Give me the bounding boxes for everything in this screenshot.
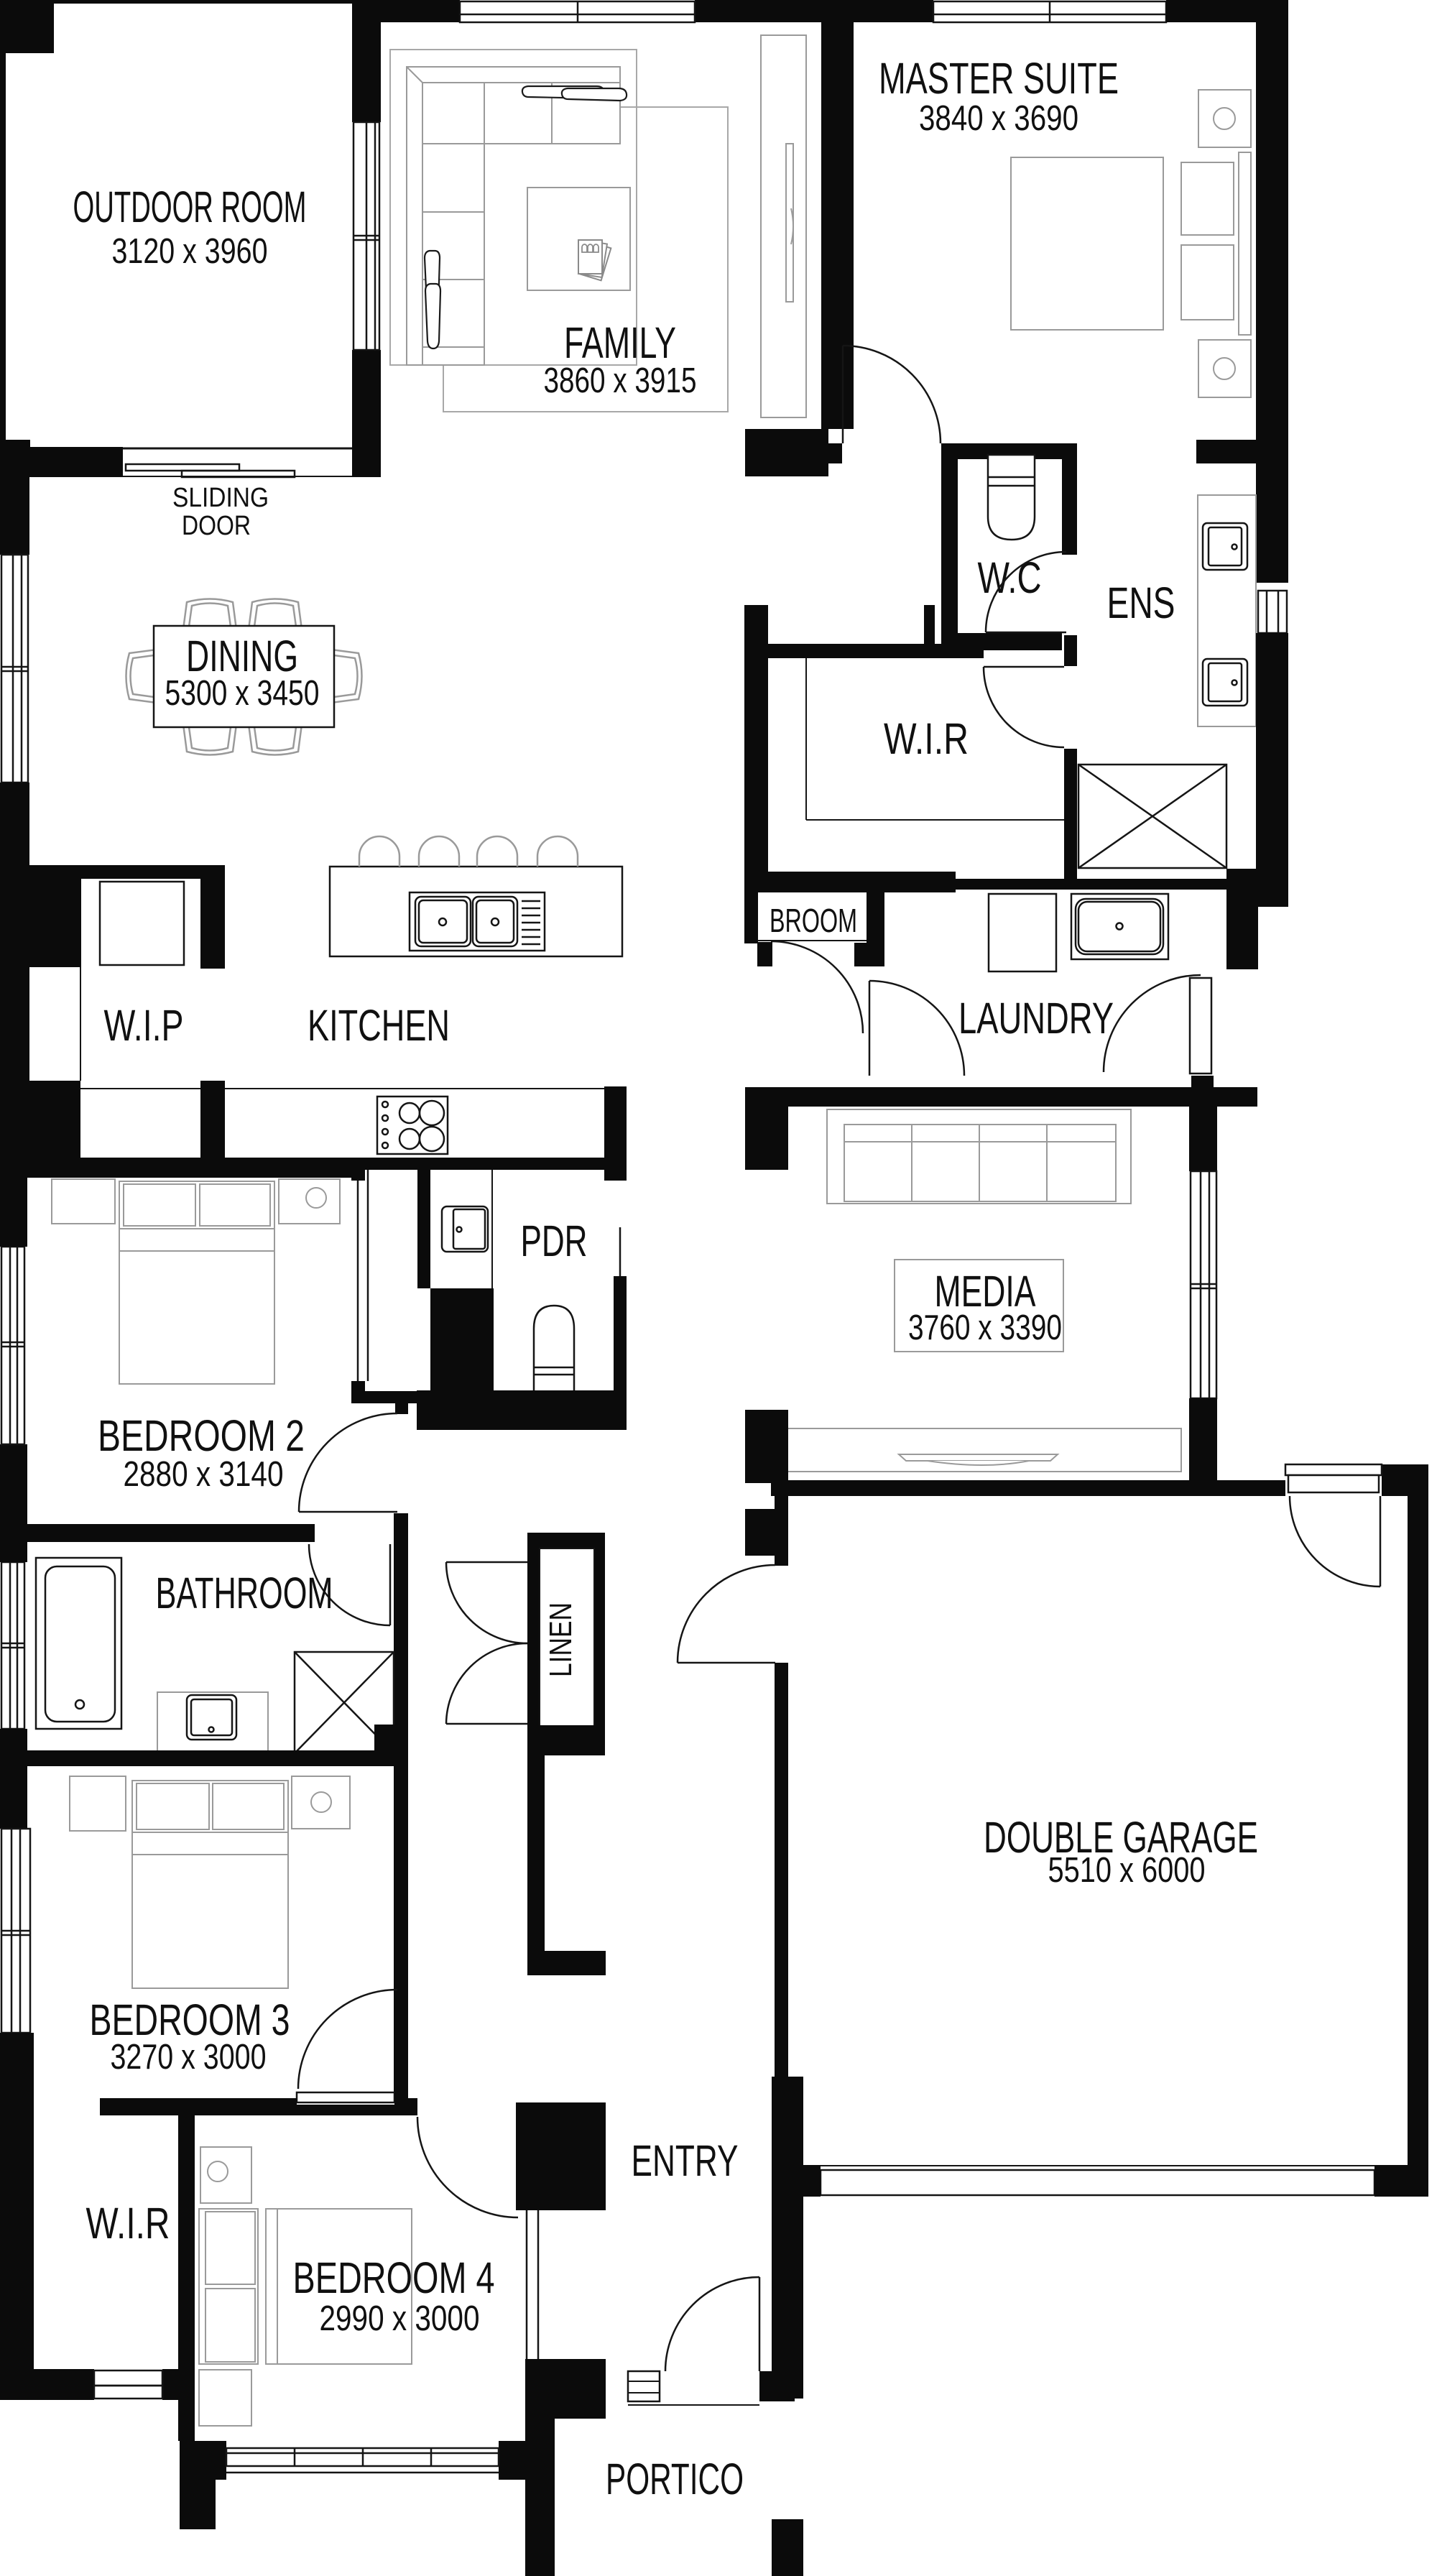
svg-text:ENTRY: ENTRY	[632, 2136, 739, 2185]
svg-text:W.I.R: W.I.R	[884, 714, 969, 763]
svg-text:BEDROOM 3: BEDROOM 3	[90, 1995, 290, 2044]
svg-text:W.I.R: W.I.R	[86, 2199, 170, 2248]
svg-text:W.C: W.C	[978, 553, 1042, 602]
svg-text:LINEN: LINEN	[543, 1602, 578, 1677]
svg-text:2990 x 3000: 2990 x 3000	[320, 2299, 480, 2338]
svg-text:BATHROOM: BATHROOM	[156, 1569, 333, 1617]
svg-text:5510 x 6000: 5510 x 6000	[1048, 1851, 1206, 1890]
svg-text:SLIDING: SLIDING	[172, 483, 269, 513]
svg-text:PDR: PDR	[521, 1217, 588, 1265]
svg-text:5300 x 3450: 5300 x 3450	[165, 674, 320, 713]
svg-text:3270 x 3000: 3270 x 3000	[111, 2038, 267, 2077]
svg-text:W.I.P: W.I.P	[104, 1001, 184, 1050]
svg-text:2880 x 3140: 2880 x 3140	[124, 1455, 284, 1494]
svg-text:BEDROOM 2: BEDROOM 2	[98, 1411, 305, 1460]
svg-text:BROOM: BROOM	[770, 902, 857, 939]
svg-text:FAMILY: FAMILY	[564, 318, 676, 367]
svg-text:MASTER SUITE: MASTER SUITE	[879, 54, 1119, 103]
svg-text:LAUNDRY: LAUNDRY	[958, 994, 1114, 1043]
svg-text:ENS: ENS	[1107, 578, 1175, 627]
svg-text:OUTDOOR ROOM: OUTDOOR ROOM	[73, 183, 307, 231]
svg-text:KITCHEN: KITCHEN	[308, 1001, 450, 1050]
svg-text:3860 x 3915: 3860 x 3915	[544, 361, 697, 400]
svg-text:3120 x 3960: 3120 x 3960	[112, 232, 268, 271]
svg-text:PORTICO: PORTICO	[606, 2455, 744, 2503]
svg-text:3760 x 3390: 3760 x 3390	[908, 1308, 1062, 1347]
svg-text:DINING: DINING	[186, 632, 298, 680]
svg-text:3840 x 3690: 3840 x 3690	[919, 99, 1078, 138]
svg-text:DOOR: DOOR	[182, 511, 251, 541]
svg-text:BEDROOM 4: BEDROOM 4	[293, 2253, 495, 2302]
